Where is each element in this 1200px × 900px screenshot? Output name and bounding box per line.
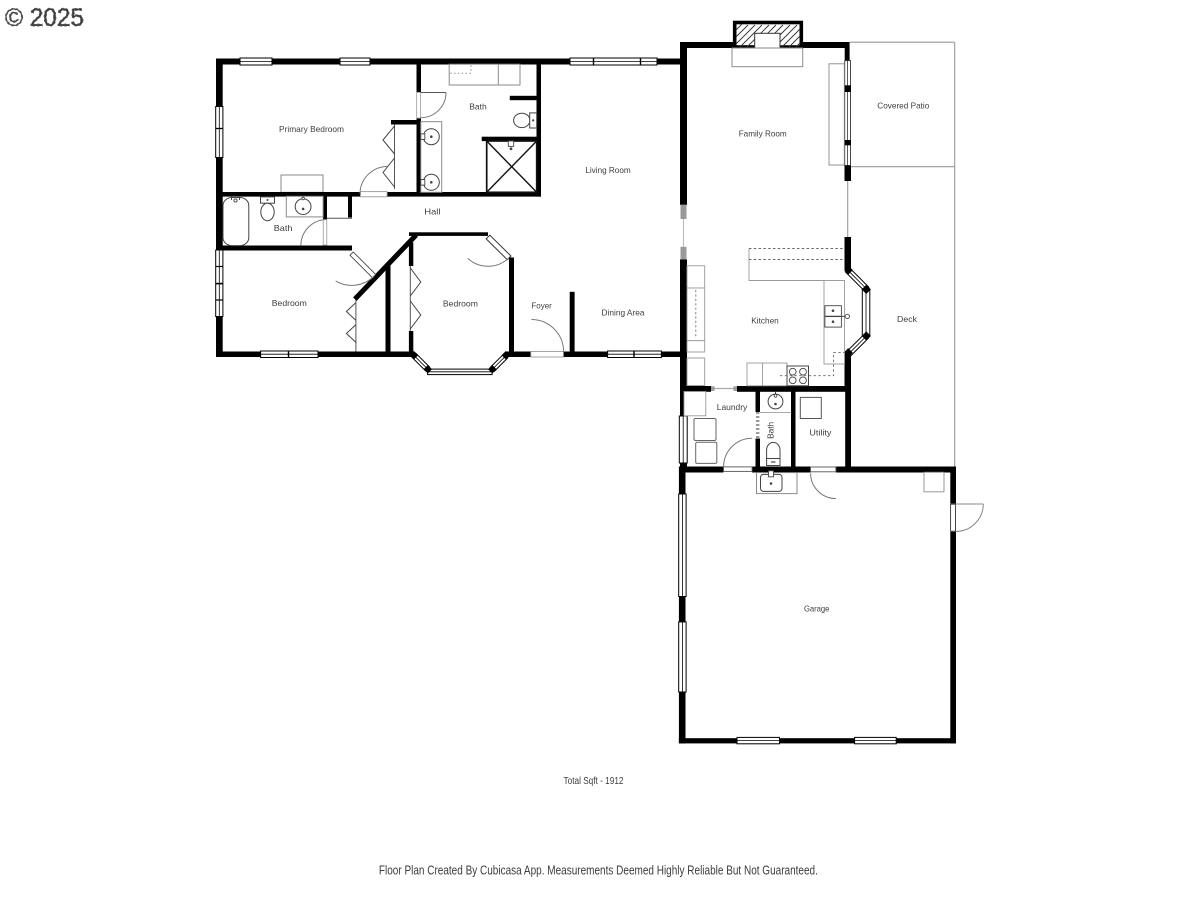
svg-text:Covered Patio: Covered Patio xyxy=(877,101,929,111)
svg-text:© 2025: © 2025 xyxy=(5,4,84,32)
svg-text:Floor Plan Created By Cubicasa: Floor Plan Created By Cubicasa App. Meas… xyxy=(379,864,818,878)
svg-text:Garage: Garage xyxy=(804,604,830,614)
svg-text:Family Room: Family Room xyxy=(739,129,787,139)
svg-text:Primary Bedroom: Primary Bedroom xyxy=(279,124,344,134)
svg-text:Bedroom: Bedroom xyxy=(443,299,478,309)
svg-text:Kitchen: Kitchen xyxy=(751,316,779,326)
svg-text:Bedroom: Bedroom xyxy=(272,298,307,308)
svg-text:Utility: Utility xyxy=(809,428,832,438)
svg-text:Foyer: Foyer xyxy=(531,301,552,311)
svg-text:Total Sqft - 1912: Total Sqft - 1912 xyxy=(564,776,624,787)
svg-text:Deck: Deck xyxy=(897,314,918,324)
svg-text:Living Room: Living Room xyxy=(585,165,630,175)
svg-text:Hall: Hall xyxy=(424,207,440,217)
svg-text:Bath: Bath xyxy=(469,102,487,112)
svg-text:Dining Area: Dining Area xyxy=(602,308,645,318)
svg-text:Laundry: Laundry xyxy=(717,402,748,412)
svg-text:Bath: Bath xyxy=(274,223,293,233)
svg-text:Bath: Bath xyxy=(766,422,776,439)
